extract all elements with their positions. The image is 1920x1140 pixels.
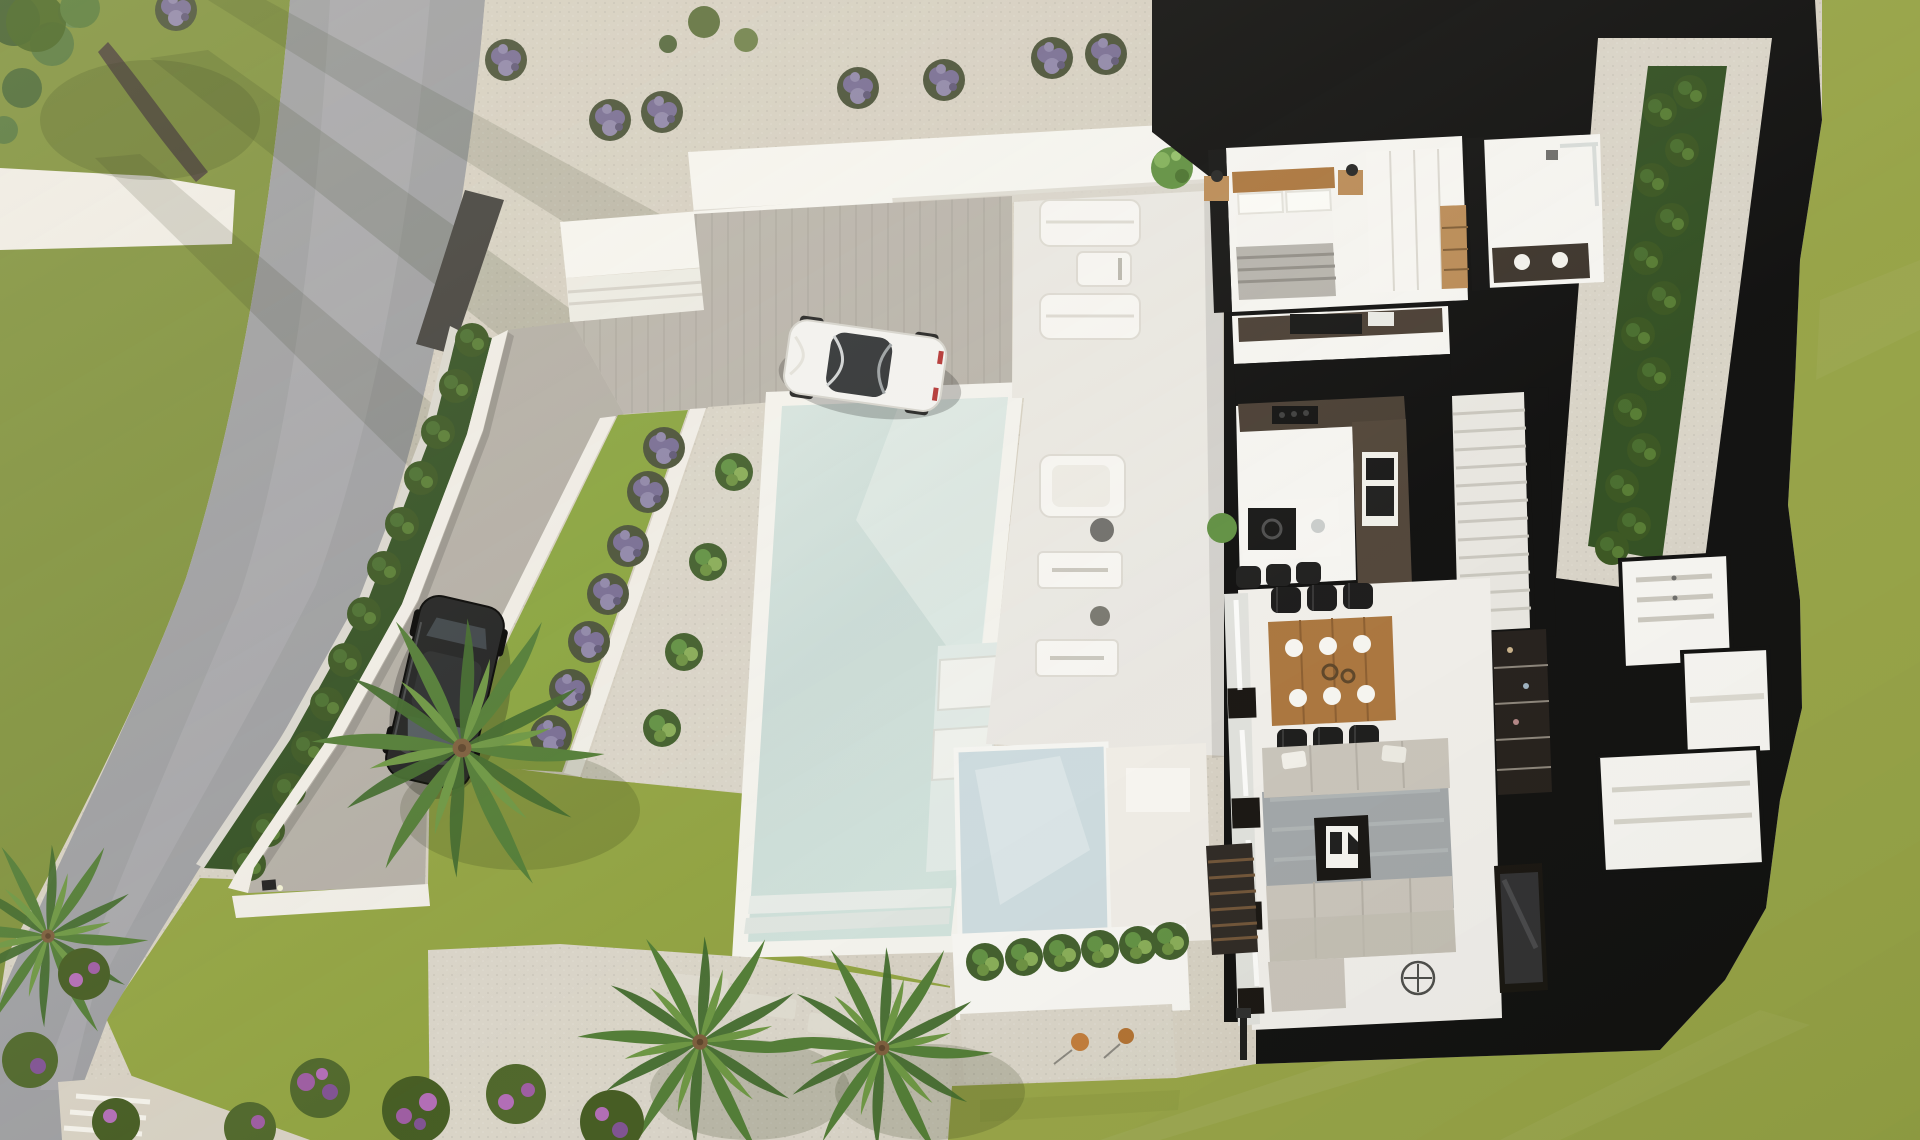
render-canvas bbox=[0, 0, 1920, 1140]
aerial-villa-render bbox=[0, 0, 1920, 1140]
sunlight-overlay bbox=[0, 0, 1920, 1140]
